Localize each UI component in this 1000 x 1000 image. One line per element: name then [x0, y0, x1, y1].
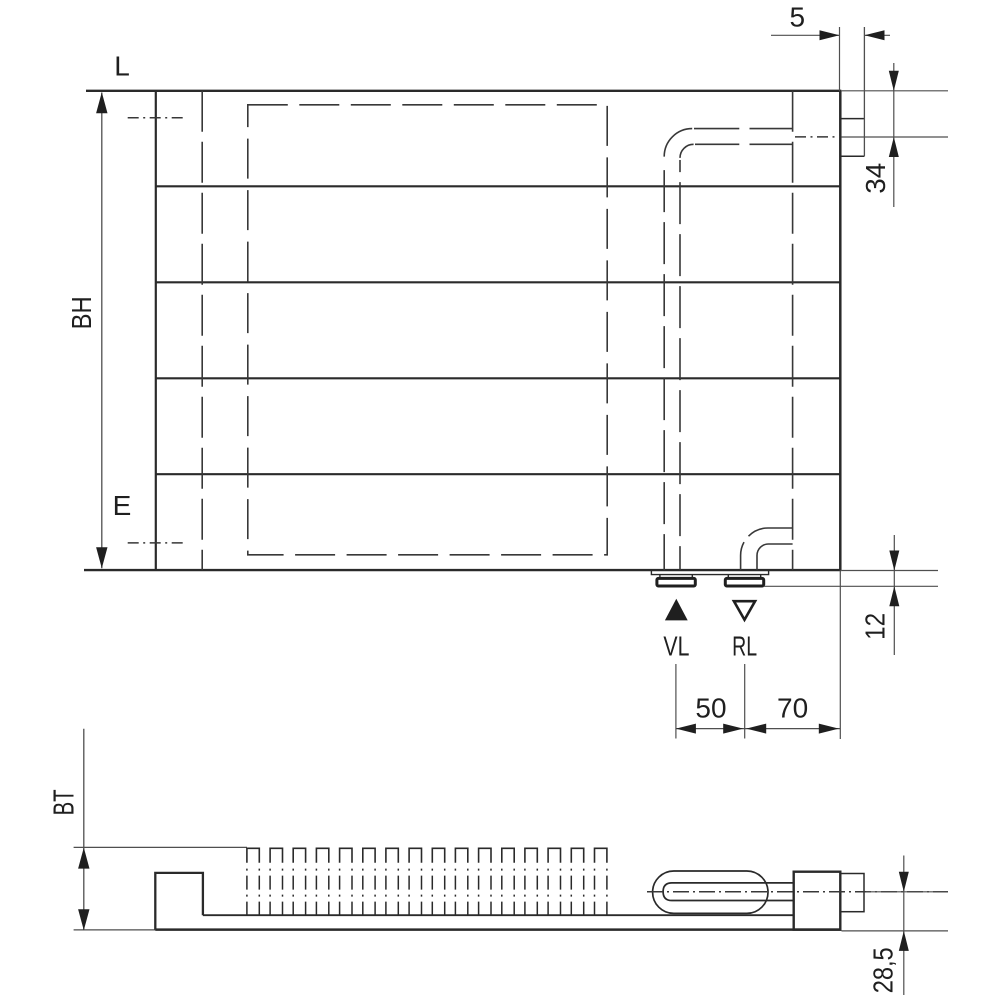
svg-text:VL: VL [663, 631, 689, 662]
svg-text:28,5: 28,5 [868, 947, 899, 993]
svg-text:E: E [113, 490, 132, 521]
svg-text:12: 12 [860, 613, 891, 640]
svg-text:50: 50 [695, 692, 726, 723]
svg-text:5: 5 [790, 2, 806, 33]
svg-text:RL: RL [732, 631, 757, 662]
svg-text:L: L [114, 50, 130, 81]
svg-text:34: 34 [860, 163, 891, 194]
svg-text:BH: BH [66, 296, 97, 329]
svg-text:70: 70 [777, 692, 808, 723]
svg-text:BT: BT [48, 789, 80, 815]
